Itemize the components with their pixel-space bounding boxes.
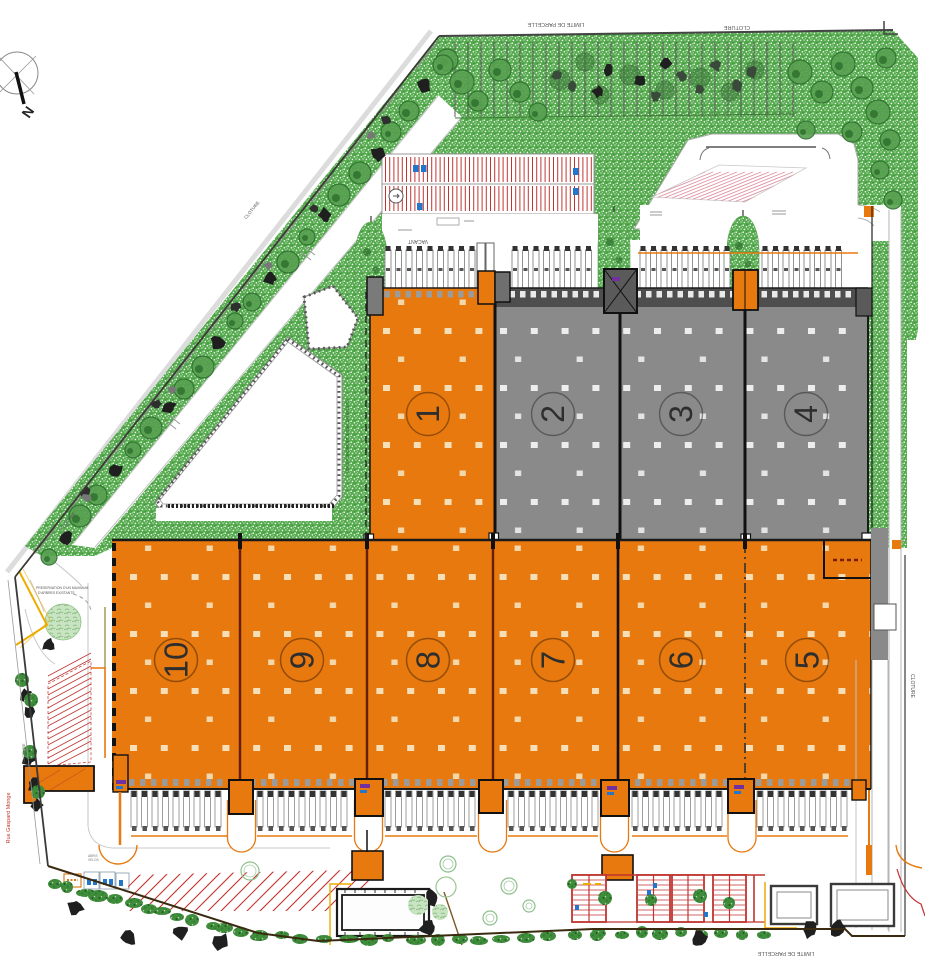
- svg-text:VOIE POMPIERS 4.00m LARGEUR: VOIE POMPIERS 4.00m LARGEUR: [345, 400, 350, 473]
- svg-text:PRESERVATION D'UN MAXIMUM: PRESERVATION D'UN MAXIMUM: [36, 586, 88, 590]
- svg-text:10: 10: [158, 642, 195, 679]
- svg-text:5: 5: [789, 651, 826, 669]
- svg-text:Rue Gaspard Monge: Rue Gaspard Monge: [6, 792, 12, 843]
- svg-text:6: 6: [663, 651, 700, 669]
- svg-text:7: 7: [535, 651, 572, 669]
- svg-text:LIMITE DE PARCELLE: LIMITE DE PARCELLE: [527, 21, 584, 27]
- svg-text:CLOTURE: CLOTURE: [243, 200, 260, 220]
- svg-text:1: 1: [410, 405, 446, 423]
- svg-text:CLOTURE: CLOTURE: [909, 674, 915, 699]
- svg-text:8: 8: [410, 651, 447, 669]
- svg-text:4: 4: [788, 405, 824, 423]
- svg-text:CLOTURE: CLOTURE: [724, 24, 751, 30]
- svg-text:3: 3: [663, 405, 699, 423]
- svg-text:VELOS: VELOS: [88, 858, 99, 862]
- svg-text:2: 2: [535, 405, 571, 423]
- svg-text:9: 9: [284, 651, 321, 669]
- svg-text:LIMITE DE PARCELLE: LIMITE DE PARCELLE: [757, 950, 814, 956]
- svg-text:CLOTURE: CLOTURE: [21, 743, 26, 762]
- svg-text:N: N: [18, 103, 37, 120]
- svg-text:VACANT: VACANT: [408, 238, 428, 244]
- svg-text:D'ARBRES EXISTANTS: D'ARBRES EXISTANTS: [38, 591, 75, 595]
